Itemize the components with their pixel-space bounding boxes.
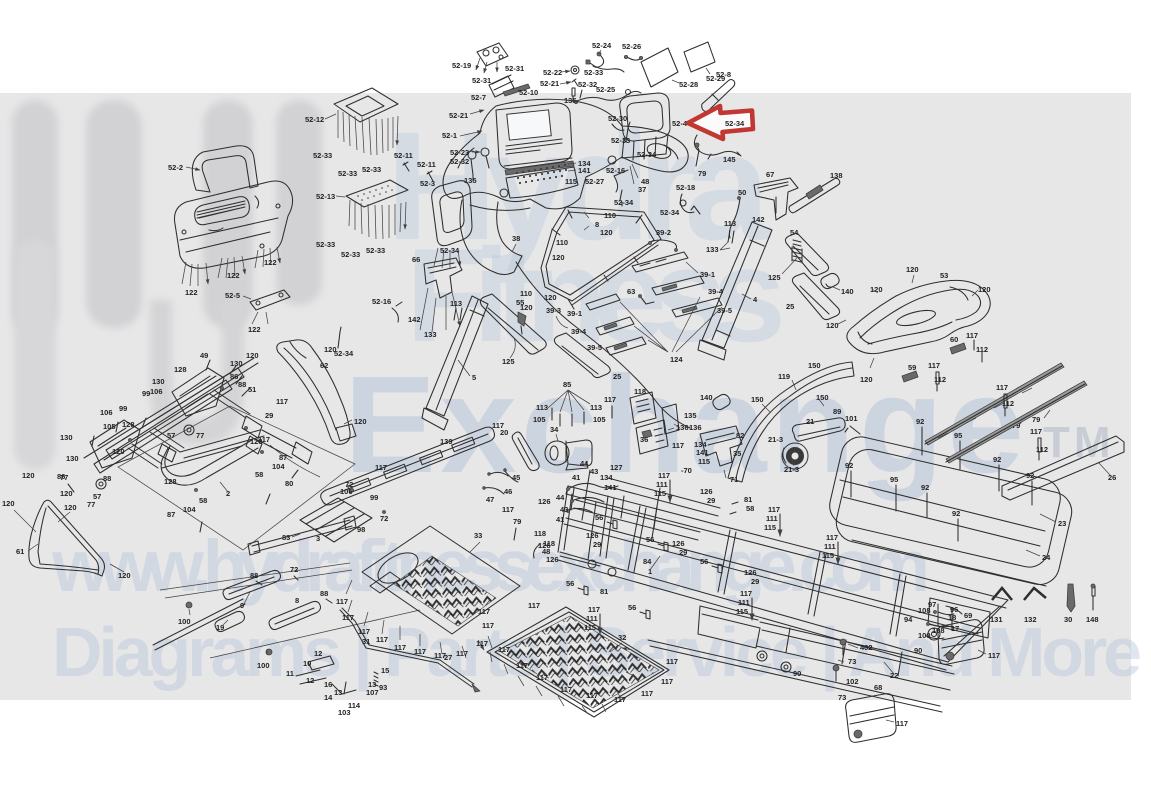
svg-text:117: 117 bbox=[658, 471, 670, 480]
svg-text:56: 56 bbox=[700, 557, 708, 566]
svg-text:95: 95 bbox=[890, 475, 898, 484]
svg-text:8: 8 bbox=[295, 596, 299, 605]
svg-text:92: 92 bbox=[845, 461, 853, 470]
svg-text:120: 120 bbox=[978, 285, 991, 294]
svg-text:111: 111 bbox=[766, 514, 778, 523]
svg-text:117: 117 bbox=[536, 673, 548, 682]
svg-text:81: 81 bbox=[600, 587, 608, 596]
svg-text:117: 117 bbox=[614, 695, 626, 704]
svg-text:52-33: 52-33 bbox=[341, 250, 360, 259]
svg-text:100: 100 bbox=[178, 617, 191, 626]
svg-text:49: 49 bbox=[200, 351, 208, 360]
svg-text:77: 77 bbox=[60, 473, 68, 482]
svg-text:95: 95 bbox=[954, 431, 962, 440]
svg-text:100: 100 bbox=[918, 631, 931, 640]
svg-text:87: 87 bbox=[279, 453, 287, 462]
svg-text:122: 122 bbox=[227, 271, 240, 280]
svg-text:120: 120 bbox=[112, 447, 125, 456]
svg-text:52-2: 52-2 bbox=[168, 163, 183, 172]
svg-text:63: 63 bbox=[627, 287, 635, 296]
svg-text:133: 133 bbox=[424, 330, 437, 339]
svg-text:117: 117 bbox=[896, 719, 908, 728]
svg-text:133: 133 bbox=[706, 245, 719, 254]
svg-text:52-25: 52-25 bbox=[596, 85, 615, 94]
svg-text:19: 19 bbox=[216, 623, 224, 632]
svg-text:132: 132 bbox=[1024, 615, 1037, 624]
svg-text:117: 117 bbox=[516, 661, 528, 670]
svg-text:99: 99 bbox=[370, 493, 378, 502]
svg-text:77: 77 bbox=[196, 431, 204, 440]
svg-text:22: 22 bbox=[890, 671, 898, 680]
svg-text:-70: -70 bbox=[681, 466, 692, 475]
svg-text:117: 117 bbox=[482, 621, 494, 630]
svg-text:106: 106 bbox=[150, 387, 163, 396]
svg-text:73: 73 bbox=[838, 693, 846, 702]
svg-text:111: 111 bbox=[738, 598, 750, 607]
svg-text:128: 128 bbox=[122, 420, 135, 429]
svg-text:113: 113 bbox=[590, 403, 602, 412]
svg-text:21-3: 21-3 bbox=[768, 435, 783, 444]
svg-text:52-21: 52-21 bbox=[449, 111, 468, 120]
svg-text:115: 115 bbox=[736, 607, 748, 616]
svg-text:66: 66 bbox=[412, 255, 420, 264]
svg-text:117: 117 bbox=[768, 505, 780, 514]
svg-text:126: 126 bbox=[672, 539, 685, 548]
svg-text:115: 115 bbox=[654, 489, 666, 498]
svg-text:126: 126 bbox=[586, 531, 599, 540]
svg-text:117: 117 bbox=[641, 689, 653, 698]
svg-text:120: 120 bbox=[552, 253, 565, 262]
svg-text:135: 135 bbox=[684, 411, 697, 420]
svg-text:52-10: 52-10 bbox=[519, 88, 538, 97]
svg-text:52-26: 52-26 bbox=[622, 42, 641, 51]
svg-text:126: 126 bbox=[744, 568, 757, 577]
svg-text:125: 125 bbox=[502, 357, 515, 366]
svg-text:52-22: 52-22 bbox=[543, 68, 562, 77]
svg-text:29: 29 bbox=[593, 540, 601, 549]
svg-text:92: 92 bbox=[993, 455, 1001, 464]
svg-text:88: 88 bbox=[238, 380, 246, 389]
svg-text:79: 79 bbox=[513, 517, 521, 526]
svg-text:56: 56 bbox=[646, 535, 654, 544]
svg-text:58: 58 bbox=[199, 496, 207, 505]
svg-text:25: 25 bbox=[613, 372, 621, 381]
svg-text:124: 124 bbox=[670, 355, 683, 364]
svg-text:117: 117 bbox=[498, 645, 510, 654]
svg-text:16: 16 bbox=[324, 680, 332, 689]
svg-text:68: 68 bbox=[874, 683, 882, 692]
svg-text:117: 117 bbox=[928, 361, 940, 370]
svg-text:117: 117 bbox=[414, 647, 426, 656]
svg-text:10: 10 bbox=[303, 659, 311, 668]
svg-text:120: 120 bbox=[860, 375, 873, 384]
svg-text:102: 102 bbox=[846, 677, 859, 686]
svg-text:126: 126 bbox=[700, 487, 713, 496]
svg-text:117: 117 bbox=[358, 627, 370, 636]
svg-text:139: 139 bbox=[440, 437, 453, 446]
svg-text:136: 136 bbox=[676, 423, 689, 432]
svg-text:32: 32 bbox=[618, 633, 626, 642]
svg-text:150: 150 bbox=[751, 395, 764, 404]
svg-text:52-33: 52-33 bbox=[313, 151, 332, 160]
svg-text:141: 141 bbox=[696, 448, 709, 457]
svg-text:52-7: 52-7 bbox=[471, 93, 486, 102]
svg-text:117: 117 bbox=[1030, 427, 1042, 436]
svg-text:130: 130 bbox=[66, 454, 79, 463]
svg-text:8: 8 bbox=[595, 220, 599, 229]
svg-text:52-34: 52-34 bbox=[614, 198, 634, 207]
svg-text:110: 110 bbox=[520, 289, 532, 298]
svg-text:126: 126 bbox=[538, 541, 551, 550]
svg-text:127: 127 bbox=[610, 463, 623, 472]
svg-text:12: 12 bbox=[314, 649, 322, 658]
svg-text:89: 89 bbox=[833, 407, 841, 416]
svg-text:105: 105 bbox=[593, 415, 606, 424]
svg-text:52-28: 52-28 bbox=[679, 80, 698, 89]
svg-text:52-34: 52-34 bbox=[334, 349, 354, 358]
svg-text:20: 20 bbox=[500, 428, 508, 437]
svg-text:92: 92 bbox=[952, 509, 960, 518]
svg-text:112: 112 bbox=[934, 375, 946, 384]
svg-text:118: 118 bbox=[634, 387, 646, 396]
svg-text:52-8: 52-8 bbox=[716, 70, 731, 79]
svg-text:39-5: 39-5 bbox=[717, 306, 732, 315]
svg-text:117: 117 bbox=[434, 651, 446, 660]
svg-text:120: 120 bbox=[60, 489, 73, 498]
svg-text:41: 41 bbox=[572, 473, 580, 482]
svg-text:117: 117 bbox=[376, 635, 388, 644]
svg-text:117: 117 bbox=[604, 395, 616, 404]
svg-text:92: 92 bbox=[921, 483, 929, 492]
svg-text:117: 117 bbox=[476, 639, 488, 648]
svg-text:29: 29 bbox=[679, 548, 687, 557]
svg-text:52-31: 52-31 bbox=[505, 64, 524, 73]
svg-text:57: 57 bbox=[167, 431, 175, 440]
svg-text:52-16: 52-16 bbox=[372, 297, 391, 306]
svg-text:120: 120 bbox=[354, 417, 367, 426]
svg-text:117: 117 bbox=[966, 331, 978, 340]
svg-text:38: 38 bbox=[512, 234, 520, 243]
svg-text:29: 29 bbox=[707, 496, 715, 505]
svg-text:77: 77 bbox=[87, 500, 95, 509]
svg-text:61: 61 bbox=[16, 547, 24, 556]
svg-text:60: 60 bbox=[950, 335, 958, 344]
svg-text:23: 23 bbox=[1058, 519, 1066, 528]
svg-text:99: 99 bbox=[119, 404, 127, 413]
svg-text:41: 41 bbox=[556, 515, 564, 524]
svg-text:128: 128 bbox=[164, 477, 177, 486]
svg-text:52-27: 52-27 bbox=[585, 177, 604, 186]
svg-text:52-19: 52-19 bbox=[452, 61, 471, 70]
svg-text:52-31: 52-31 bbox=[472, 76, 491, 85]
svg-text:134: 134 bbox=[600, 473, 613, 482]
svg-text:120: 120 bbox=[870, 285, 883, 294]
svg-text:88: 88 bbox=[250, 571, 258, 580]
svg-text:81: 81 bbox=[744, 495, 752, 504]
svg-text:130: 130 bbox=[230, 359, 243, 368]
svg-text:112: 112 bbox=[1002, 399, 1014, 408]
svg-text:113: 113 bbox=[536, 403, 548, 412]
svg-text:145: 145 bbox=[723, 155, 736, 164]
svg-text:52-23: 52-23 bbox=[450, 148, 469, 157]
svg-text:29: 29 bbox=[265, 411, 273, 420]
svg-text:117: 117 bbox=[478, 607, 490, 616]
svg-text:130: 130 bbox=[152, 377, 165, 386]
svg-text:125: 125 bbox=[768, 273, 781, 282]
svg-text:71: 71 bbox=[730, 475, 738, 484]
svg-text:117: 117 bbox=[456, 649, 468, 658]
svg-text:111: 111 bbox=[824, 542, 836, 551]
svg-text:111: 111 bbox=[656, 480, 668, 489]
svg-text:103: 103 bbox=[338, 708, 351, 717]
svg-text:105: 105 bbox=[103, 422, 116, 431]
svg-text:115: 115 bbox=[822, 551, 834, 560]
svg-text:84: 84 bbox=[643, 557, 652, 566]
svg-text:135: 135 bbox=[464, 176, 477, 185]
svg-text:110: 110 bbox=[604, 211, 616, 220]
svg-text:142: 142 bbox=[408, 315, 421, 324]
svg-text:148: 148 bbox=[1086, 615, 1099, 624]
svg-text:34: 34 bbox=[550, 425, 559, 434]
svg-text:52-34: 52-34 bbox=[660, 208, 680, 217]
svg-text:52-13: 52-13 bbox=[316, 192, 335, 201]
svg-text:118: 118 bbox=[534, 529, 546, 538]
svg-text:140: 140 bbox=[700, 393, 713, 402]
svg-text:52-33: 52-33 bbox=[611, 136, 630, 145]
svg-text:52-24: 52-24 bbox=[592, 41, 612, 50]
svg-text:111: 111 bbox=[586, 614, 598, 623]
svg-text:117: 117 bbox=[826, 533, 838, 542]
svg-text:85: 85 bbox=[563, 380, 571, 389]
svg-text:52-30: 52-30 bbox=[608, 114, 627, 123]
svg-text:67: 67 bbox=[766, 170, 774, 179]
svg-text:52-34: 52-34 bbox=[440, 246, 460, 255]
svg-text:120: 120 bbox=[64, 503, 77, 512]
svg-text:35: 35 bbox=[733, 449, 741, 458]
svg-text:88: 88 bbox=[103, 474, 111, 483]
svg-text:52-33: 52-33 bbox=[366, 246, 385, 255]
svg-text:117: 117 bbox=[666, 657, 678, 666]
svg-text:128: 128 bbox=[250, 437, 263, 446]
svg-text:117: 117 bbox=[672, 441, 684, 450]
svg-text:119: 119 bbox=[778, 372, 790, 381]
svg-text:52-33: 52-33 bbox=[338, 169, 357, 178]
svg-text:150: 150 bbox=[808, 361, 821, 370]
svg-text:52-21: 52-21 bbox=[540, 79, 559, 88]
svg-text:117: 117 bbox=[528, 601, 540, 610]
svg-text:12: 12 bbox=[306, 676, 314, 685]
svg-text:117: 117 bbox=[560, 685, 572, 694]
svg-text:130: 130 bbox=[60, 433, 73, 442]
svg-text:115: 115 bbox=[764, 523, 776, 532]
svg-text:46: 46 bbox=[504, 487, 512, 496]
svg-text:52-11: 52-11 bbox=[417, 160, 436, 169]
svg-text:30: 30 bbox=[1064, 615, 1072, 624]
svg-text:52-4: 52-4 bbox=[672, 119, 688, 128]
svg-text:52-11: 52-11 bbox=[394, 151, 413, 160]
svg-text:52-32: 52-32 bbox=[450, 157, 469, 166]
svg-text:69: 69 bbox=[964, 611, 972, 620]
svg-text:52-18: 52-18 bbox=[676, 183, 695, 192]
svg-text:43: 43 bbox=[590, 467, 598, 476]
svg-text:122: 122 bbox=[185, 288, 198, 297]
svg-text:62: 62 bbox=[320, 361, 328, 370]
svg-text:51: 51 bbox=[248, 385, 256, 394]
svg-text:56: 56 bbox=[566, 579, 574, 588]
svg-text:120: 120 bbox=[600, 228, 613, 237]
svg-text:117: 117 bbox=[342, 613, 354, 622]
svg-text:106: 106 bbox=[340, 487, 353, 496]
svg-text:24: 24 bbox=[1042, 553, 1051, 562]
svg-text:52-33: 52-33 bbox=[316, 240, 335, 249]
svg-text:117: 117 bbox=[586, 691, 598, 700]
svg-text:120: 120 bbox=[906, 265, 919, 274]
svg-text:138: 138 bbox=[830, 171, 843, 180]
svg-text:50: 50 bbox=[738, 188, 746, 197]
svg-text:47: 47 bbox=[486, 495, 494, 504]
svg-text:126: 126 bbox=[538, 497, 551, 506]
svg-text:52-33: 52-33 bbox=[584, 68, 603, 77]
svg-text:92: 92 bbox=[916, 417, 924, 426]
svg-text:100: 100 bbox=[257, 661, 270, 670]
svg-text:115: 115 bbox=[584, 623, 596, 632]
svg-text:98: 98 bbox=[357, 525, 365, 534]
svg-text:52-12: 52-12 bbox=[305, 115, 324, 124]
svg-text:39-1: 39-1 bbox=[567, 309, 582, 318]
svg-text:52-16: 52-16 bbox=[606, 166, 625, 175]
svg-text:52-34: 52-34 bbox=[637, 150, 657, 159]
svg-text:44: 44 bbox=[580, 459, 589, 468]
svg-text:120: 120 bbox=[118, 571, 131, 580]
svg-text:52-5: 52-5 bbox=[225, 291, 240, 300]
svg-text:15: 15 bbox=[381, 666, 389, 675]
svg-text:107: 107 bbox=[366, 688, 379, 697]
svg-text:115: 115 bbox=[565, 177, 577, 186]
svg-text:115: 115 bbox=[698, 457, 710, 466]
svg-text:31: 31 bbox=[362, 637, 370, 646]
svg-text:29: 29 bbox=[751, 577, 759, 586]
svg-text:79: 79 bbox=[698, 169, 706, 178]
svg-text:52-34: 52-34 bbox=[725, 119, 745, 128]
svg-text:39-2: 39-2 bbox=[656, 228, 671, 237]
svg-text:72: 72 bbox=[290, 565, 298, 574]
svg-text:112: 112 bbox=[1036, 445, 1048, 454]
svg-text:117: 117 bbox=[375, 463, 387, 472]
svg-text:117: 117 bbox=[740, 589, 752, 598]
svg-text:39-4: 39-4 bbox=[571, 327, 587, 336]
svg-text:33: 33 bbox=[474, 531, 482, 540]
svg-text:37: 37 bbox=[638, 185, 646, 194]
svg-text:110: 110 bbox=[556, 238, 568, 247]
svg-text:117: 117 bbox=[276, 397, 288, 406]
svg-text:117: 117 bbox=[336, 597, 348, 606]
svg-text:122: 122 bbox=[264, 258, 277, 267]
svg-text:120: 120 bbox=[22, 471, 35, 480]
svg-text:45: 45 bbox=[512, 473, 520, 482]
svg-text:5: 5 bbox=[472, 373, 476, 382]
svg-text:87: 87 bbox=[167, 510, 175, 519]
svg-text:94: 94 bbox=[904, 615, 913, 624]
svg-text:21-3: 21-3 bbox=[784, 465, 799, 474]
svg-text:17: 17 bbox=[951, 624, 959, 633]
svg-text:106: 106 bbox=[100, 408, 113, 417]
svg-text:52-1: 52-1 bbox=[442, 131, 457, 140]
svg-text:140: 140 bbox=[841, 287, 854, 296]
svg-text:117: 117 bbox=[661, 677, 673, 686]
svg-text:14: 14 bbox=[324, 693, 333, 702]
svg-text:52-32: 52-32 bbox=[578, 80, 597, 89]
svg-text:120: 120 bbox=[324, 345, 337, 354]
svg-text:59: 59 bbox=[908, 363, 916, 372]
svg-text:58: 58 bbox=[255, 470, 263, 479]
svg-text:105: 105 bbox=[533, 415, 546, 424]
svg-text:108: 108 bbox=[918, 606, 931, 615]
svg-text:131: 131 bbox=[990, 615, 1003, 624]
svg-text:126: 126 bbox=[546, 555, 559, 564]
svg-text:79: 79 bbox=[1032, 415, 1040, 424]
svg-text:90: 90 bbox=[793, 669, 801, 678]
svg-text:104: 104 bbox=[272, 462, 285, 471]
svg-text:11: 11 bbox=[286, 669, 294, 678]
svg-text:93: 93 bbox=[379, 683, 387, 692]
svg-text:117: 117 bbox=[502, 505, 514, 514]
svg-text:53: 53 bbox=[940, 271, 948, 280]
svg-text:104: 104 bbox=[183, 505, 196, 514]
svg-text:73: 73 bbox=[848, 657, 856, 666]
svg-text:80: 80 bbox=[285, 479, 293, 488]
svg-text:117: 117 bbox=[996, 383, 1008, 392]
svg-text:136: 136 bbox=[689, 423, 702, 432]
svg-text:88: 88 bbox=[320, 589, 328, 598]
svg-text:13: 13 bbox=[334, 688, 342, 697]
svg-text:122: 122 bbox=[248, 325, 261, 334]
svg-text:113: 113 bbox=[450, 299, 462, 308]
svg-text:21: 21 bbox=[806, 417, 814, 426]
svg-text:141: 141 bbox=[604, 483, 617, 492]
svg-text:141: 141 bbox=[578, 166, 591, 175]
svg-text:402: 402 bbox=[860, 643, 873, 652]
svg-text:39-1: 39-1 bbox=[700, 270, 715, 279]
svg-text:52-3: 52-3 bbox=[420, 179, 435, 188]
svg-text:120: 120 bbox=[2, 499, 15, 508]
svg-text:25: 25 bbox=[786, 302, 794, 311]
svg-text:52-33: 52-33 bbox=[362, 165, 381, 174]
svg-text:83: 83 bbox=[282, 533, 290, 542]
svg-text:117: 117 bbox=[394, 643, 406, 652]
svg-text:3: 3 bbox=[316, 534, 320, 543]
svg-text:120: 120 bbox=[826, 321, 839, 330]
svg-text:150: 150 bbox=[816, 393, 829, 402]
svg-text:44: 44 bbox=[556, 493, 565, 502]
svg-text:101: 101 bbox=[845, 414, 858, 423]
svg-text:56: 56 bbox=[595, 513, 603, 522]
svg-text:128: 128 bbox=[174, 365, 187, 374]
svg-text:142: 142 bbox=[752, 215, 765, 224]
svg-text:82: 82 bbox=[736, 431, 744, 440]
svg-text:43: 43 bbox=[560, 505, 568, 514]
svg-text:90: 90 bbox=[914, 646, 922, 655]
svg-text:117: 117 bbox=[988, 651, 1000, 660]
svg-text:72: 72 bbox=[380, 514, 388, 523]
svg-text:56: 56 bbox=[628, 603, 636, 612]
svg-text:36: 36 bbox=[640, 435, 648, 444]
svg-text:58: 58 bbox=[746, 504, 754, 513]
svg-text:55: 55 bbox=[516, 298, 524, 307]
svg-text:117: 117 bbox=[588, 605, 600, 614]
